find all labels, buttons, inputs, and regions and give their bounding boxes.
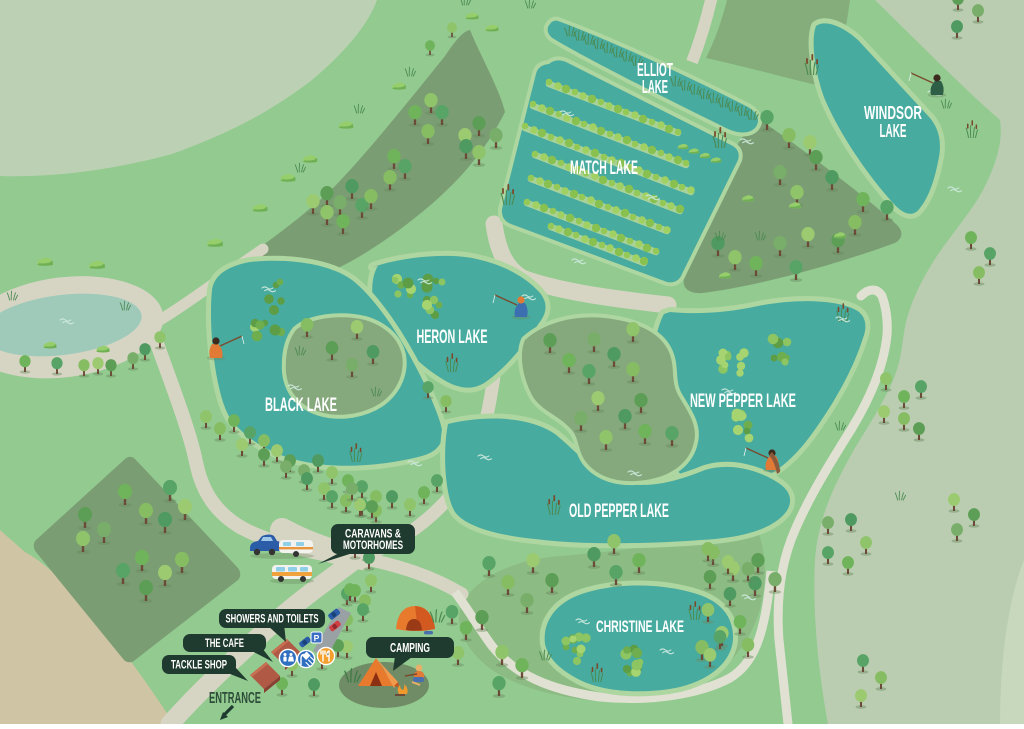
svg-text:MATCH LAKE: MATCH LAKE: [570, 158, 638, 179]
svg-text:LAKE: LAKE: [642, 77, 668, 97]
svg-text:LAKE: LAKE: [880, 121, 907, 141]
svg-text:SHOWERS AND TOILETS: SHOWERS AND TOILETS: [226, 612, 319, 626]
svg-text:CARAVANS &: CARAVANS &: [345, 528, 401, 540]
svg-text:ENTRANCE: ENTRANCE: [209, 690, 261, 707]
svg-text:CHRISTINE LAKE: CHRISTINE LAKE: [596, 617, 684, 636]
svg-text:P: P: [314, 633, 320, 643]
svg-text:TACKLE SHOP: TACKLE SHOP: [171, 658, 227, 672]
svg-text:MOTORHOMES: MOTORHOMES: [343, 540, 403, 552]
svg-text:THE CAFE: THE CAFE: [205, 636, 244, 650]
svg-text:BLACK LAKE: BLACK LAKE: [265, 395, 337, 416]
svg-text:OLD PEPPER LAKE: OLD PEPPER LAKE: [569, 501, 669, 522]
svg-text:WINDSOR: WINDSOR: [864, 103, 922, 123]
svg-text:CAMPING: CAMPING: [390, 641, 430, 655]
svg-text:HERON LAKE: HERON LAKE: [417, 327, 488, 348]
svg-text:NEW PEPPER LAKE: NEW PEPPER LAKE: [690, 391, 796, 412]
